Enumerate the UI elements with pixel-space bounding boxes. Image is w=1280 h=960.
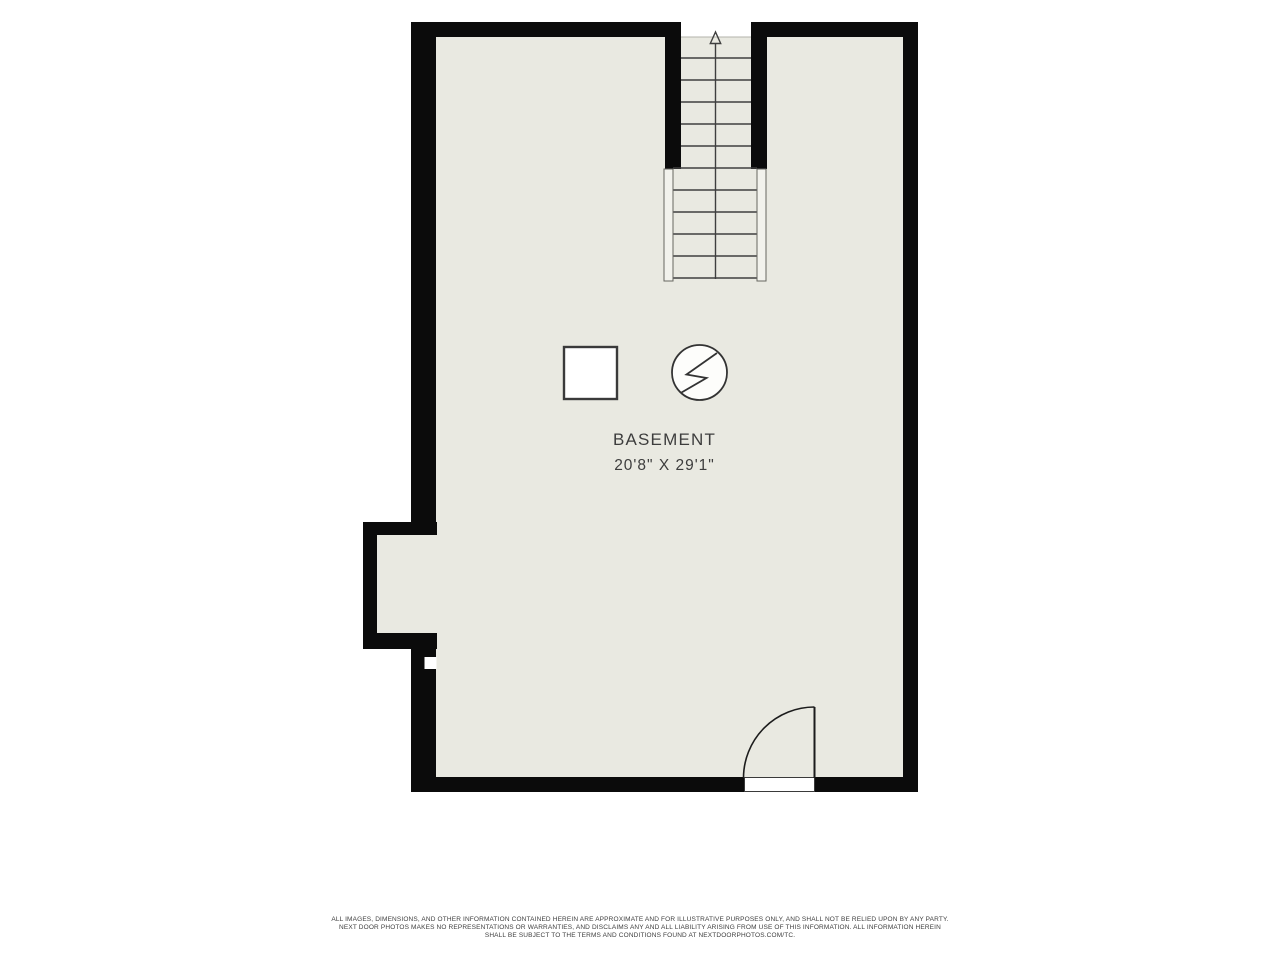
lightning-circle-icon bbox=[672, 345, 727, 400]
stairwell-wall-left bbox=[665, 37, 681, 169]
alcove-wall-bottom bbox=[363, 633, 437, 649]
floor-plan: BASEMENT 20'8" X 29'1" bbox=[0, 0, 1280, 960]
wall-right bbox=[903, 22, 918, 792]
disclaimer-line: SHALL BE SUBJECT TO THE TERMS AND CONDIT… bbox=[0, 932, 1280, 940]
stairwell-wall-right bbox=[751, 37, 767, 169]
symbol-circle bbox=[672, 345, 727, 400]
disclaimer: ALL IMAGES, DIMENSIONS, AND OTHER INFORM… bbox=[0, 916, 1280, 940]
door-threshold bbox=[745, 778, 815, 792]
stair-rail-right bbox=[757, 169, 766, 281]
disclaimer-line: NEXT DOOR PHOTOS MAKES NO REPRESENTATION… bbox=[0, 924, 1280, 932]
wall-left-upper bbox=[411, 22, 436, 535]
alcove-wall-left bbox=[363, 522, 377, 649]
stair-rail-left bbox=[664, 169, 673, 281]
disclaimer-line: ALL IMAGES, DIMENSIONS, AND OTHER INFORM… bbox=[0, 916, 1280, 924]
wall-bottom bbox=[411, 777, 918, 792]
room-dimensions: 20'8" X 29'1" bbox=[614, 457, 715, 474]
floor-area bbox=[377, 37, 903, 778]
appliance-square-icon bbox=[564, 347, 617, 399]
wall-top bbox=[411, 22, 918, 37]
room-label: BASEMENT bbox=[613, 430, 716, 449]
wall-notch bbox=[425, 657, 437, 669]
wall-left-lower bbox=[411, 633, 436, 792]
